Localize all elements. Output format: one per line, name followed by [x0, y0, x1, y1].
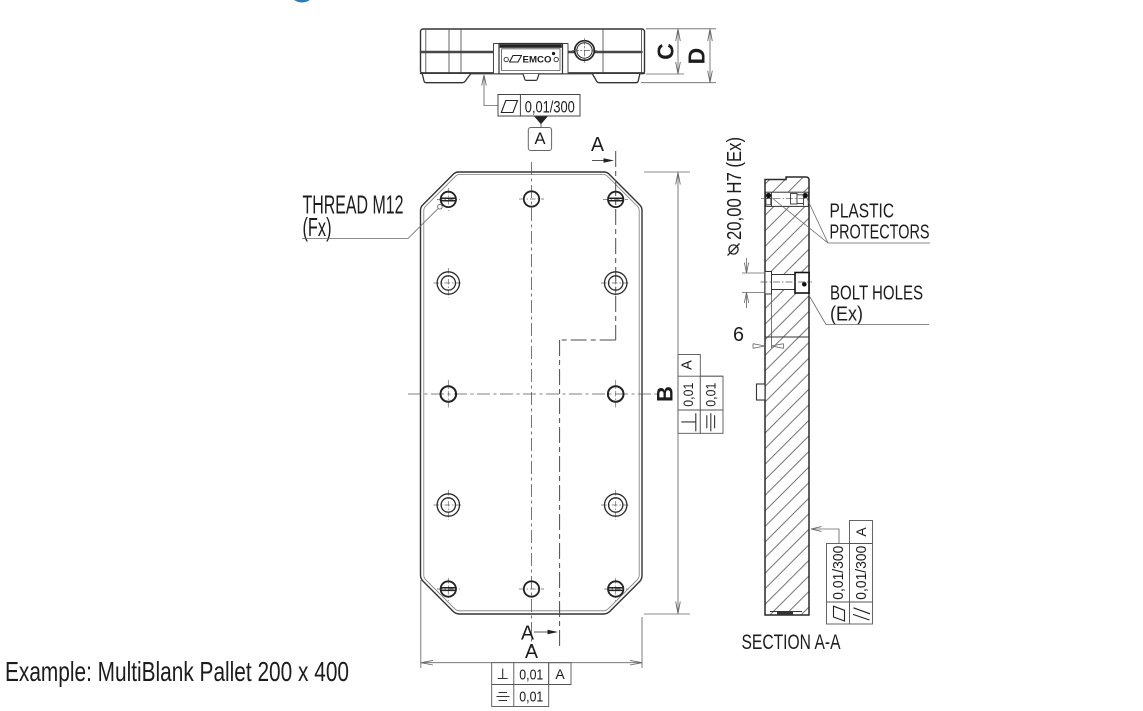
svg-text:PLASTIC: PLASTIC: [830, 201, 895, 223]
svg-text:(Fx): (Fx): [303, 212, 332, 242]
svg-text:6: 6: [733, 324, 744, 346]
svg-text:0,01/300: 0,01/300: [853, 546, 870, 600]
svg-text:A: A: [555, 666, 565, 682]
svg-text:(Ex): (Ex): [830, 304, 863, 326]
svg-text:D: D: [684, 48, 710, 65]
svg-text:0,01: 0,01: [681, 383, 696, 407]
svg-text:SECTION A-A: SECTION A-A: [742, 631, 841, 654]
svg-text:B: B: [653, 386, 678, 402]
svg-text:EMCO: EMCO: [523, 55, 552, 66]
svg-text:C: C: [653, 43, 679, 60]
svg-text:20,00 H7 (Ex): 20,00 H7 (Ex): [724, 137, 746, 240]
svg-text:0,01: 0,01: [519, 666, 543, 683]
svg-text:BOLT HOLES: BOLT HOLES: [830, 283, 923, 305]
svg-text:A: A: [680, 360, 696, 370]
svg-text:A: A: [853, 527, 869, 537]
svg-text:Example: MultiBlank Pallet 200: Example: MultiBlank Pallet 200 x 400: [5, 656, 349, 687]
svg-text:A: A: [534, 130, 545, 148]
svg-text:A: A: [591, 134, 605, 156]
svg-text:0,01: 0,01: [519, 688, 543, 705]
svg-text:0,01/300: 0,01/300: [830, 546, 847, 600]
svg-text:0,01/300: 0,01/300: [525, 98, 575, 116]
svg-text:A: A: [525, 641, 539, 663]
svg-text:0,01: 0,01: [704, 383, 719, 407]
svg-text:PROTECTORS: PROTECTORS: [830, 222, 930, 244]
